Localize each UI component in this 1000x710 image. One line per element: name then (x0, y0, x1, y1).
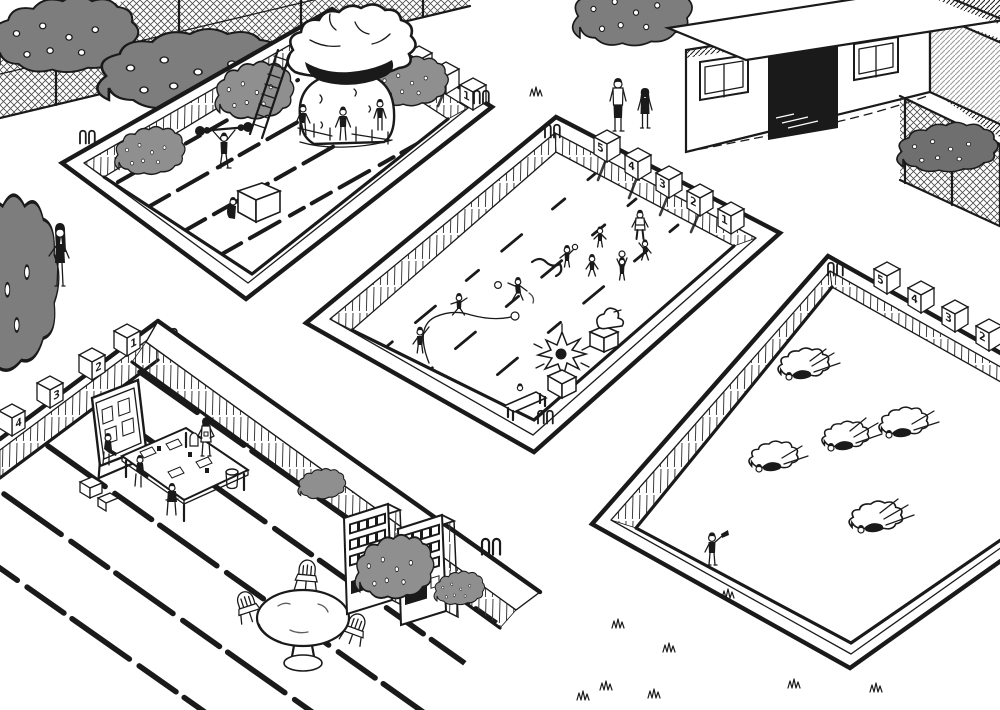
manga-pool-scene: 5 4 3 2 1 (0, 0, 1000, 710)
window (854, 37, 898, 80)
rope-ball (511, 312, 519, 320)
ball (495, 282, 502, 289)
window (700, 55, 748, 100)
illustration-canvas: 5 4 3 2 1 (0, 0, 1000, 710)
